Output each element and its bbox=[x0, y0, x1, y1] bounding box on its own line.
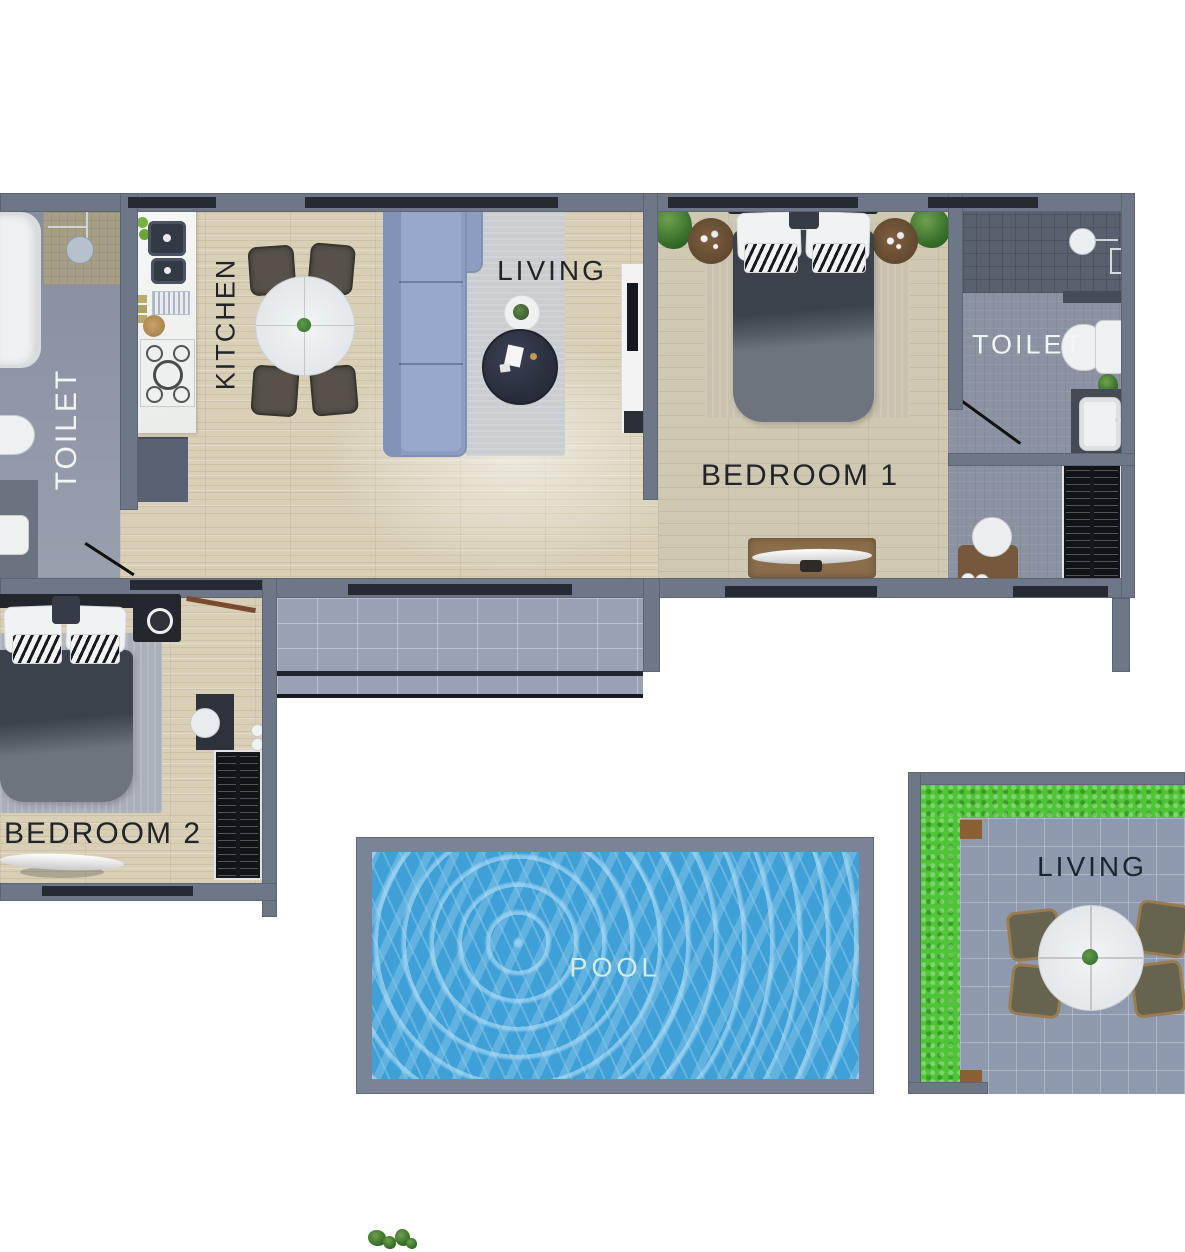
sofa-back-cushions bbox=[383, 203, 401, 457]
window bbox=[128, 197, 216, 208]
window bbox=[668, 197, 858, 208]
table-plant-icon bbox=[1082, 949, 1098, 965]
bed2-zigzag-pillow bbox=[12, 634, 62, 664]
wall-deck-right bbox=[643, 578, 660, 672]
shower-pipe bbox=[86, 207, 88, 241]
table-plant-icon bbox=[297, 318, 311, 332]
vanity-sink bbox=[1079, 397, 1121, 451]
media-box bbox=[624, 411, 643, 433]
wall-right bbox=[1121, 193, 1135, 598]
sofa-seat bbox=[401, 209, 461, 451]
sliding-door bbox=[725, 586, 877, 597]
wardrobe bbox=[214, 750, 262, 880]
sliding-door bbox=[42, 886, 193, 896]
nightstand-decor bbox=[147, 608, 173, 634]
chair-cushion bbox=[972, 517, 1012, 557]
nightstand bbox=[688, 218, 734, 264]
plant-icon bbox=[406, 1238, 417, 1249]
vanity-basin bbox=[190, 708, 220, 738]
wall-stub-right bbox=[1112, 598, 1130, 672]
wardrobe-panel bbox=[240, 754, 258, 876]
outdoor-wall-bottom bbox=[908, 1082, 988, 1094]
wardrobe bbox=[1062, 458, 1122, 587]
bed2-accent-pillow bbox=[52, 596, 80, 624]
shower-area bbox=[963, 205, 1121, 293]
kitchen-base-cabinet bbox=[138, 437, 188, 502]
bedroom2-label: BEDROOM 2 bbox=[4, 817, 202, 851]
burner-icon bbox=[173, 386, 190, 403]
wall-bedroom2-right bbox=[262, 578, 277, 917]
burner-icon bbox=[146, 386, 163, 403]
wall-bedroom1-toilet bbox=[948, 193, 963, 410]
wardrobe-panel bbox=[218, 754, 236, 876]
toilet-ensuite-label: TOILET bbox=[972, 330, 1084, 361]
toilet-main-label: TOILET bbox=[50, 368, 84, 490]
herb-pot bbox=[137, 217, 148, 228]
bed2-duvet bbox=[0, 650, 133, 802]
plant-icon bbox=[383, 1236, 396, 1249]
sink-drain bbox=[164, 267, 171, 274]
stove-cooktop bbox=[140, 339, 195, 407]
dish-rack bbox=[152, 291, 190, 315]
vanity-sink bbox=[0, 515, 29, 555]
shower-threshold bbox=[1063, 291, 1121, 303]
coffee-table bbox=[482, 329, 558, 405]
window bbox=[305, 197, 558, 208]
planter-wood bbox=[960, 820, 982, 839]
shower-rail bbox=[48, 226, 88, 228]
living-indoor-label: LIVING bbox=[497, 255, 607, 287]
bed1-zigzag-pillow bbox=[744, 243, 798, 273]
outdoor-wall-top bbox=[908, 772, 1185, 785]
sink-drain bbox=[163, 234, 171, 242]
shower-head-icon bbox=[1069, 228, 1096, 255]
sofa bbox=[383, 203, 467, 457]
living-outdoor-label: LIVING bbox=[1037, 851, 1147, 883]
sliding-door bbox=[348, 584, 572, 595]
shower-head-icon bbox=[66, 236, 94, 264]
bed2-zigzag-pillow bbox=[70, 634, 120, 664]
bathtub bbox=[0, 212, 41, 368]
bench-item bbox=[800, 560, 822, 572]
deck-edge bbox=[277, 694, 643, 698]
burner-icon bbox=[146, 345, 163, 362]
grass-strip bbox=[921, 818, 960, 1082]
wall-toilet-kitchen bbox=[120, 193, 138, 510]
burner-icon bbox=[173, 345, 190, 362]
kitchen-label: KITCHEN bbox=[211, 258, 242, 391]
plant-icon bbox=[513, 304, 529, 320]
bedroom1-label: BEDROOM 1 bbox=[701, 459, 899, 493]
shower-arm bbox=[1094, 239, 1118, 241]
deck-patio bbox=[277, 598, 643, 698]
floor-plan: TOILET KITCHEN LIVING bbox=[0, 0, 1185, 1252]
sliding-door bbox=[1013, 586, 1108, 597]
wall-living-bedroom1 bbox=[643, 193, 658, 500]
pool-label: POOL bbox=[569, 953, 660, 984]
spice-box bbox=[138, 295, 147, 303]
wall-toilet-ensuite-bottom bbox=[948, 453, 1135, 466]
bed1-zigzag-pillow bbox=[812, 243, 866, 273]
toilet-tank bbox=[1095, 320, 1124, 374]
sliding-door bbox=[130, 580, 277, 590]
nightstand bbox=[872, 218, 918, 264]
wardrobe-panel bbox=[1066, 462, 1090, 583]
wardrobe-panel bbox=[1094, 462, 1118, 583]
deck-step-line bbox=[277, 671, 643, 676]
outdoor-wall-left bbox=[908, 772, 921, 1094]
window bbox=[928, 197, 1038, 208]
tv-icon bbox=[627, 283, 638, 351]
grass-strip bbox=[921, 785, 1185, 818]
spice-box bbox=[138, 305, 147, 313]
counter-flowers bbox=[143, 315, 165, 337]
